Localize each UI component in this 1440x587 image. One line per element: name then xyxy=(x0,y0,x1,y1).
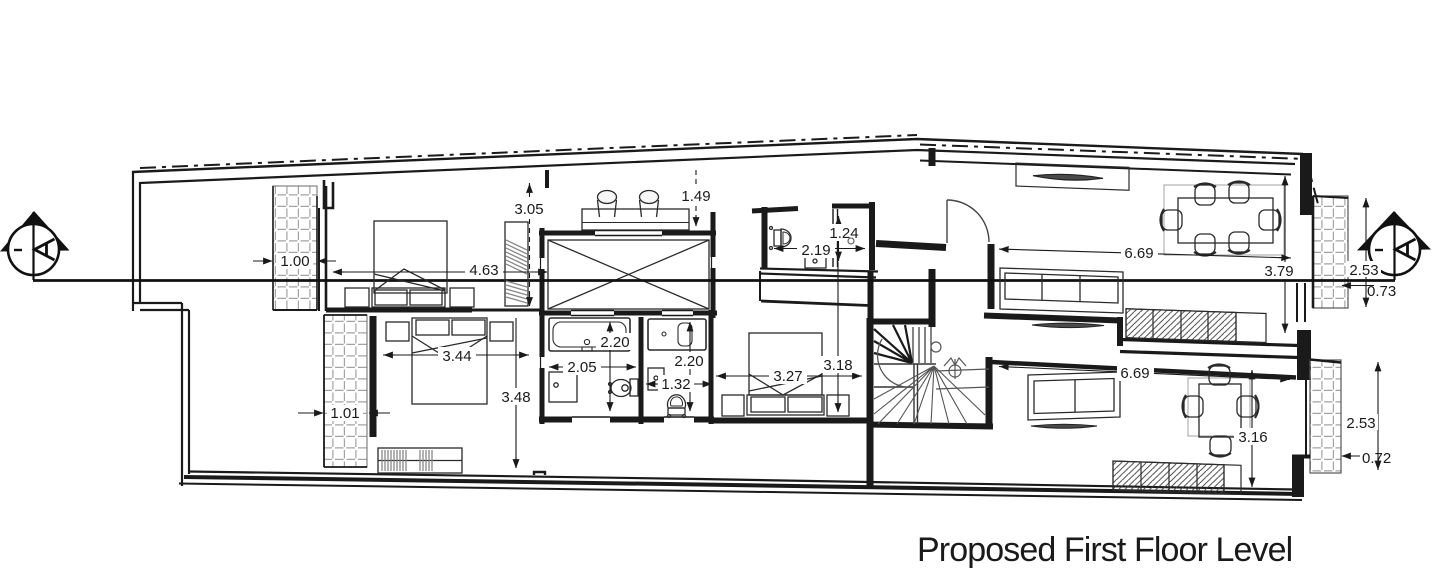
svg-text:3.05: 3.05 xyxy=(514,201,543,218)
svg-text:2.19: 2.19 xyxy=(801,242,830,259)
svg-text:1.24: 1.24 xyxy=(829,225,858,242)
svg-text:3.44: 3.44 xyxy=(442,348,471,365)
svg-text:6.69: 6.69 xyxy=(1124,245,1153,262)
svg-text:3.18: 3.18 xyxy=(823,357,852,374)
svg-text:0.73: 0.73 xyxy=(1367,283,1396,300)
svg-text:1.01: 1.01 xyxy=(330,405,359,422)
svg-text:2.20: 2.20 xyxy=(600,334,629,351)
svg-text:1.49: 1.49 xyxy=(681,188,710,205)
svg-text:Proposed First Floor Level: Proposed First Floor Level xyxy=(917,531,1292,569)
svg-text:3.27: 3.27 xyxy=(773,368,802,385)
svg-text:1.00: 1.00 xyxy=(280,253,309,270)
svg-text:2.53: 2.53 xyxy=(1346,415,1375,432)
svg-text:6.69: 6.69 xyxy=(1120,365,1149,382)
svg-text:2.20: 2.20 xyxy=(674,353,703,370)
svg-text:2.53: 2.53 xyxy=(1349,262,1378,279)
svg-text:3.16: 3.16 xyxy=(1238,429,1267,446)
svg-text:3.79: 3.79 xyxy=(1264,263,1293,280)
svg-text:4.63: 4.63 xyxy=(469,262,498,279)
svg-text:3.48: 3.48 xyxy=(501,389,530,406)
svg-text:1.32: 1.32 xyxy=(661,376,690,393)
svg-text:0.72: 0.72 xyxy=(1362,450,1391,467)
svg-text:2.05: 2.05 xyxy=(567,359,596,376)
